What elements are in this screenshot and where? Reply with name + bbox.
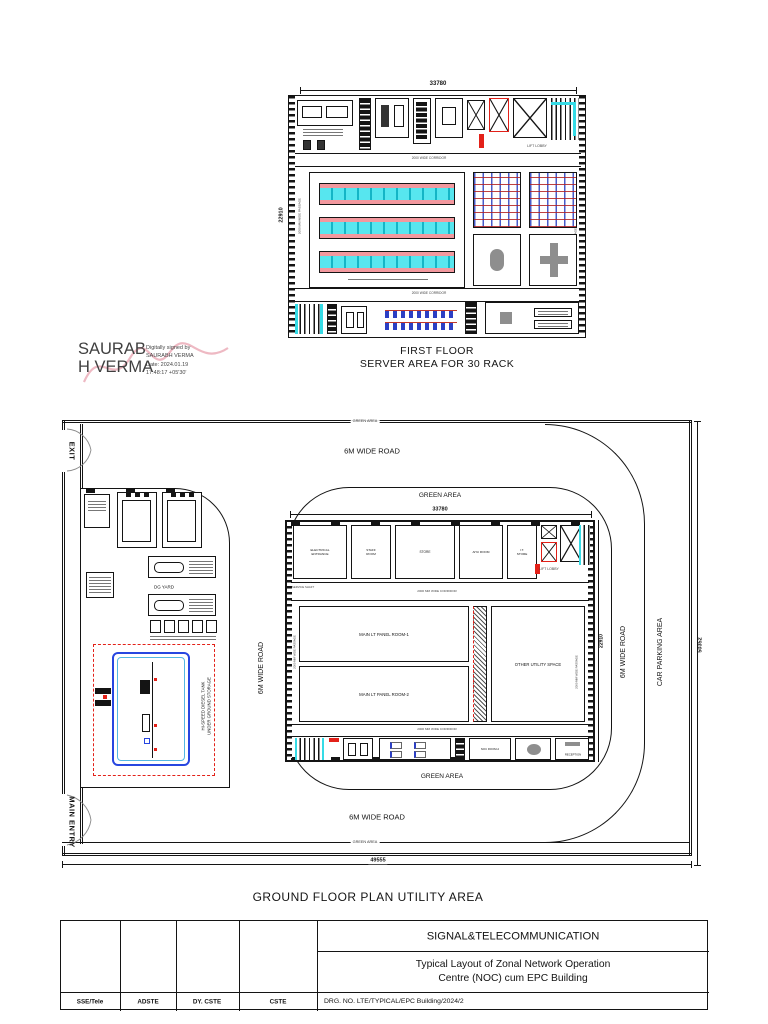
room-electrical: ELECTRICAL ENTRANCE — [293, 525, 347, 579]
gf-lift-lobby-label: LIFT LOBBY — [539, 567, 559, 571]
wall-hatch-left — [289, 96, 295, 336]
yard-unit — [150, 620, 161, 633]
room-it-store: I.T. STORE — [507, 525, 537, 579]
ff-room-inner — [357, 312, 364, 328]
tank-connector — [95, 700, 111, 706]
dg-tick — [180, 493, 185, 497]
room-reception: RECEPTION — [555, 738, 589, 760]
dim-tick — [691, 861, 692, 868]
ff-shaft-fill — [416, 102, 427, 140]
tank-pump — [140, 680, 150, 694]
title-block-divider — [120, 921, 121, 1011]
transformer-row-1 — [148, 556, 216, 578]
ff-meeting-room — [473, 234, 521, 286]
ff-stair-cyan — [551, 102, 575, 105]
drawing-title-line2: Centre (NOC) cum EPC Building — [438, 973, 587, 985]
dim-tick — [694, 865, 701, 866]
corridor-line — [295, 288, 581, 289]
ff-room — [435, 98, 463, 138]
gf-shaft — [541, 525, 557, 539]
dg-tick — [189, 493, 194, 497]
title-block-divider — [317, 921, 318, 1011]
tiny-text-lines — [303, 129, 343, 136]
tank-pipe — [152, 662, 153, 758]
sign-label-sse: SSE/Tele — [77, 998, 103, 1005]
gf-corridor-bottom-label: 2000 MM WIDE CORRIDOR — [417, 728, 457, 732]
ff-equipment — [381, 105, 389, 127]
green-strip-bottom-label: GREEN AREA — [351, 841, 380, 845]
corridor-line — [295, 166, 581, 167]
gf-stair-cyan — [295, 738, 297, 760]
tiny-text-lines — [150, 636, 216, 641]
room-noc-2: NOC ROOM-2 — [469, 738, 511, 760]
server-rack-row — [319, 183, 455, 205]
meeting-table — [527, 744, 541, 755]
dg-tick — [171, 493, 176, 497]
room-staff: STAFF ROOM — [351, 525, 391, 579]
drawing-sheet: 33780 22910 2000 MM WIDE PASSAGE 2000 MM… — [0, 0, 768, 1024]
transformer — [154, 562, 184, 573]
ff-corridor-upper-label: 2000 WIDE CORRIDOR — [412, 157, 447, 161]
sign-label-cste: CSTE — [270, 998, 287, 1005]
server-rack-row — [319, 251, 455, 273]
ff-dim-left: 22910 — [279, 205, 285, 224]
yard-unit — [178, 620, 189, 633]
dg-set-2 — [162, 492, 202, 548]
main-entry-label: MAIN ENTRY — [67, 796, 76, 847]
tank-detail — [144, 738, 150, 744]
signature-name-line2: H VERMA — [78, 359, 153, 377]
gf-dim-tick — [290, 511, 291, 518]
gf-room-inner — [348, 743, 356, 756]
gf-lift-red — [541, 542, 557, 562]
ff-label-box — [534, 308, 572, 317]
yard-unit — [206, 620, 217, 633]
exit-label: EXIT — [67, 442, 76, 461]
gf-dim-top: 33780 — [430, 507, 449, 513]
drg-number: DRG. NO. LTE/TYPICAL/EPC Building/2024/2 — [324, 998, 464, 1006]
server-rack-row — [319, 217, 455, 239]
gf-building: ELECTRICAL ENTRANCE STAFF ROOM STORE AHU… — [285, 520, 595, 762]
corridor-line — [291, 724, 589, 725]
gf-stair-cyan — [579, 525, 581, 565]
gf-meeting-room — [515, 738, 551, 760]
tank-valve — [154, 748, 157, 751]
ff-dim-tick — [576, 87, 577, 94]
corridor-line — [291, 600, 589, 601]
corridor-line — [291, 736, 589, 737]
ff-red-marker — [479, 134, 484, 148]
corridor-line — [291, 582, 589, 583]
plot-boundary-left — [62, 472, 65, 794]
ff-room-inner — [326, 106, 348, 118]
diesel-tank — [112, 652, 190, 766]
ff-dim-line-top — [300, 90, 577, 91]
signature-detail-line: Digitally signed by — [146, 344, 194, 352]
signature-detail-line: 17:48:17 +05'30' — [146, 369, 194, 377]
gf-dim-line-top — [290, 514, 592, 515]
tiny-text-lines — [348, 279, 428, 282]
ff-dim-top: 33780 — [428, 81, 449, 87]
yard-room — [84, 494, 110, 528]
corridor-line — [295, 153, 581, 154]
plot-boundary-right — [689, 420, 692, 856]
yard-unit — [164, 620, 175, 633]
ff-dim-tick — [300, 87, 301, 94]
ff-title-line2: SERVER AREA FOR 30 RACK — [360, 358, 514, 370]
road-left-label: 6M WIDE ROAD — [258, 642, 266, 694]
ff-desk-row — [385, 310, 457, 318]
gf-red-marker — [329, 738, 339, 742]
gf-dim-right: 22910 — [600, 632, 605, 650]
ff-fixture — [317, 140, 325, 150]
ff-label-box — [534, 320, 572, 329]
dg-yard-label: DG YARD — [154, 584, 174, 589]
ff-title-line1: FIRST FLOOR — [400, 345, 474, 357]
dim-tick — [694, 421, 701, 422]
first-floor-plan: 2000 MM WIDE PASSAGE 2000 MM WIDE PASSAG… — [288, 95, 586, 338]
room-lt-panel-1: MAIN LT PANEL ROOM-1 — [299, 606, 469, 662]
yard-info-box — [86, 572, 114, 598]
ff-fixture — [303, 140, 311, 150]
cable-shaft — [473, 606, 487, 722]
ff-shaft-block — [413, 98, 431, 144]
ff-passage-left-label: 2000 MM WIDE PASSAGE — [298, 198, 301, 234]
ff-stair-cyan — [295, 304, 298, 334]
road-bottom-label: 6M WIDE ROAD — [349, 814, 405, 823]
ff-furniture — [540, 256, 568, 264]
ff-lift — [513, 98, 547, 138]
gf-shaft-block — [455, 738, 465, 760]
ff-stair-cyan — [573, 102, 576, 136]
drawing-title-line1: Typical Layout of Zonal Network Operatio… — [416, 959, 611, 971]
signature-name-line1: SAURAB — [78, 341, 153, 359]
plot-dim-bottom: 49555 — [368, 858, 387, 864]
plot-dim-right: 50352 — [698, 635, 704, 654]
desk — [414, 751, 426, 758]
gf-stair-bottom — [295, 738, 325, 760]
department-title: SIGNAL&TELECOMMUNICATION — [427, 931, 600, 944]
dg-set-inner — [122, 500, 151, 542]
reception-desk — [565, 742, 580, 746]
road-curve-topright — [545, 424, 645, 524]
signature-name: SAURAB H VERMA — [78, 341, 153, 377]
signature-detail-line: Date: 2024.01.19 — [146, 361, 194, 369]
tank-valve — [154, 678, 157, 681]
gf-passage-left-label: 2000 MM WIDE PASSAGE — [293, 635, 296, 669]
ff-lift-red — [489, 98, 509, 132]
road-top-label: 6M WIDE ROAD — [344, 448, 400, 457]
title-block-divider — [176, 921, 177, 1011]
digital-signature: SAURAB H VERMA Digitally signed by SAURA… — [78, 338, 248, 392]
gf-room-inner — [360, 743, 368, 756]
tank-valve — [103, 695, 107, 699]
ff-room — [485, 302, 579, 334]
desk — [390, 742, 402, 749]
sign-label-adste: ADSTE — [137, 998, 158, 1005]
ff-shaft — [467, 100, 485, 130]
gf-corridor-top-label: 2000 MM WIDE CORRIDOR — [417, 590, 457, 594]
title-block-divider — [61, 992, 317, 993]
wall-hatch-right — [579, 96, 585, 336]
dg-set-inner — [167, 500, 196, 542]
green-strip-top-label: GREEN AREA — [351, 420, 380, 424]
transformer-row-2 — [148, 594, 216, 616]
ff-shaft-block — [359, 98, 371, 150]
tank-valve — [154, 724, 157, 727]
tank-pump — [142, 714, 150, 732]
title-block-divider — [239, 921, 240, 1011]
dg-tick — [144, 493, 149, 497]
ff-furniture — [500, 312, 512, 324]
ff-stair-bottomleft — [295, 304, 323, 334]
sign-label-dycste: DY. CSTE — [193, 998, 221, 1005]
room-ahu: AHU ROOM — [459, 525, 503, 579]
diesel-tank-label: HI-SPEED DIESEL TANK UNDER GROUND STORAG… — [201, 677, 214, 735]
ff-room-inner — [442, 107, 456, 125]
ff-room — [341, 306, 367, 334]
gf-stair-cyan — [322, 738, 324, 760]
green-area-bottom-label: GREEN AREA — [419, 774, 465, 781]
parking-divider-line — [644, 524, 645, 744]
ff-desk-row-area — [385, 308, 457, 332]
road-right-label: 6M WIDE ROAD — [620, 626, 628, 678]
dg-tick — [126, 493, 131, 497]
gf-title: GROUND FLOOR PLAN UTILITY AREA — [253, 891, 484, 905]
dg-tick — [135, 493, 140, 497]
plot-dim-line-bottom — [62, 864, 692, 865]
title-block-divider — [317, 992, 709, 993]
dim-tick — [62, 861, 63, 868]
ff-room-inner — [302, 106, 322, 118]
service-shaft-label: SERVICE SHAFT — [292, 586, 314, 589]
room-lt-panel-2: MAIN LT PANEL ROOM-2 — [299, 666, 469, 722]
plot-boundary-left — [62, 420, 65, 430]
title-block: SSE/Tele ADSTE DY. CSTE CSTE SIGNAL&TELE… — [60, 920, 708, 1010]
desk — [414, 742, 426, 749]
signature-detail-line: SAURABH VERMA — [146, 352, 194, 360]
ff-room — [375, 98, 409, 138]
ff-room — [297, 100, 353, 126]
car-parking-label: CAR PARKING AREA — [657, 618, 665, 686]
gf-dim-tick — [591, 511, 592, 518]
ff-desk-row — [385, 322, 457, 330]
ff-shaft-block — [327, 304, 337, 334]
ff-desk-cluster — [529, 172, 577, 228]
ff-lift-lobby-label: LIFT LOBBY — [527, 144, 547, 148]
ff-room — [529, 234, 577, 286]
gf-room — [343, 738, 373, 760]
plot-boundary-bottom — [62, 853, 692, 856]
gf-passage-right-label: 2000 MM WIDE PASSAGE — [575, 655, 578, 689]
ff-stair-cyan — [320, 304, 323, 334]
ff-shaft-block — [465, 302, 477, 334]
dg-set-1 — [117, 492, 157, 548]
room-store: STORE — [395, 525, 455, 579]
room-other-utility: OTHER UTILITY SPACE — [491, 606, 585, 722]
reception-label: RECEPTION — [565, 753, 581, 756]
diesel-tank-inner — [117, 657, 185, 761]
signature-details: Digitally signed by SAURABH VERMA Date: … — [146, 344, 194, 377]
ff-room-inner — [346, 312, 354, 328]
yard-unit — [192, 620, 203, 633]
tank-connector — [95, 688, 111, 694]
title-block-divider — [317, 951, 709, 952]
ff-desk-cluster — [473, 172, 521, 228]
desk — [390, 751, 402, 758]
transformer — [154, 600, 184, 611]
ff-corridor-lower-label: 2000 WIDE CORRIDOR — [412, 292, 447, 296]
meeting-table — [490, 249, 504, 271]
ff-equipment — [394, 105, 404, 127]
ff-server-room — [309, 172, 465, 288]
gf-office-room — [379, 738, 451, 760]
